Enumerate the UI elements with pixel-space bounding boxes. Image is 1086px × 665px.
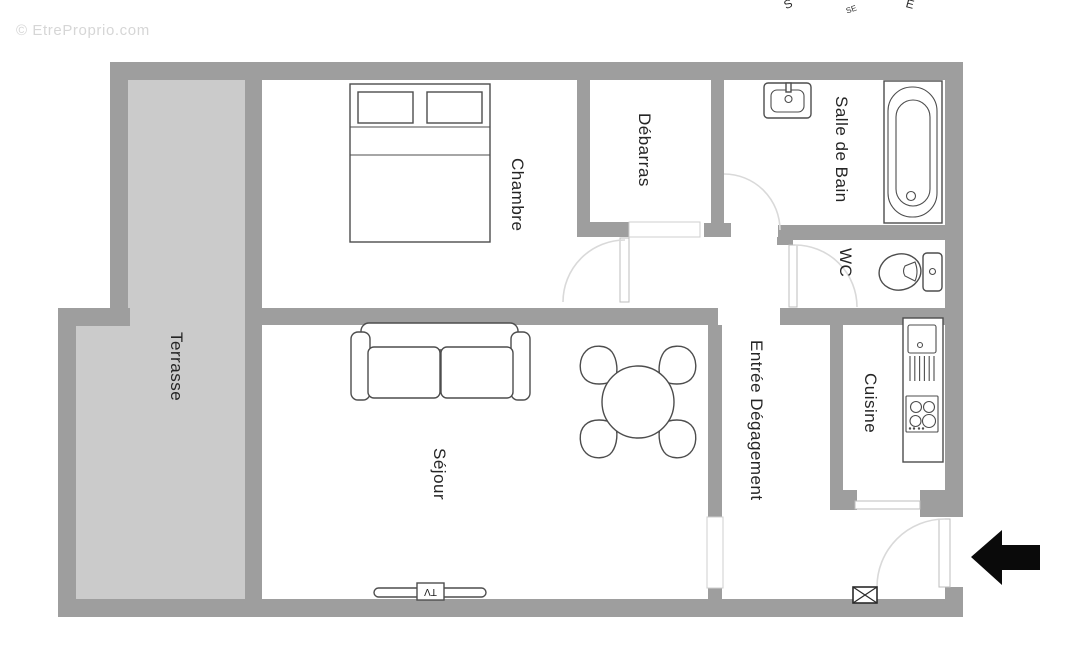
bathtub-icon (884, 81, 942, 223)
room-label-chambre: Chambre (507, 158, 527, 231)
wc-door-leaf (789, 245, 797, 307)
wall-right-upper (945, 62, 963, 517)
room-label-sejour: Séjour (429, 448, 449, 500)
floor-plan-drawing (0, 0, 1086, 665)
wall-left-upper (110, 62, 128, 326)
room-label-terrasse: Terrasse (166, 332, 186, 401)
tv-label: TV (417, 583, 444, 600)
wall-wc-jamb (777, 237, 793, 245)
door-arc-chambre (563, 240, 625, 302)
wall-sdb-bottom (778, 225, 945, 240)
kitchen-counter-icon (903, 318, 943, 462)
cuisine-door-leaf (855, 501, 920, 509)
table-icon (602, 366, 674, 438)
sejour-hall-opening (707, 517, 723, 588)
wall-cuisine-corner (830, 490, 857, 510)
wall-hall-right (830, 325, 843, 493)
wall-right-lower (945, 587, 963, 617)
room-label-salle-de-bain: Salle de Bain (831, 96, 851, 203)
room-label-wc: WC (835, 248, 855, 277)
wall-terrace-inner (245, 62, 262, 599)
wall-debarras-sdb (711, 80, 724, 223)
pillow-icon (358, 92, 413, 123)
dining-table-icon (580, 346, 696, 458)
toilet-tank (923, 253, 942, 291)
terrace-fill-upper (128, 80, 245, 326)
wall-chambre-debarras (577, 80, 590, 223)
wall-hall-left (708, 325, 722, 517)
wall-debarras-sdb-cap (704, 223, 731, 237)
entrance-door-leaf (939, 519, 950, 587)
door-arc-entrance (877, 519, 945, 587)
room-label-cuisine: Cuisine (860, 373, 880, 433)
debarras-opening (629, 222, 700, 237)
room-label-debarras: Débarras (634, 113, 654, 187)
toilet-icon (876, 250, 942, 294)
terrace-area (76, 80, 245, 599)
floor-plan: © EtreProprio.com S SE E Terrasse Chambr… (0, 0, 1086, 665)
door-arc-salle-de-bain (724, 174, 780, 230)
pillow-icon (427, 92, 482, 123)
bed-icon (350, 84, 490, 242)
bathroom-sink-icon (764, 83, 811, 118)
junction-box-icon (853, 587, 877, 603)
wall-hall-left-stub (708, 588, 722, 599)
wall-bottom (58, 599, 963, 617)
terrace-fill-lower (76, 326, 245, 599)
chambre-door-leaf (620, 238, 629, 302)
wall-top (110, 62, 963, 80)
faucet-icon (786, 83, 791, 92)
room-label-entree-degagement: Entrée Dégagement (746, 340, 766, 501)
sofa-icon (351, 323, 530, 400)
wall-debarras-bottom (577, 222, 629, 237)
watermark: © EtreProprio.com (16, 22, 150, 39)
entrance-arrow-icon (971, 530, 1040, 585)
wall-left-lower (58, 308, 76, 617)
wall-cuisine-right-piece (920, 490, 946, 517)
